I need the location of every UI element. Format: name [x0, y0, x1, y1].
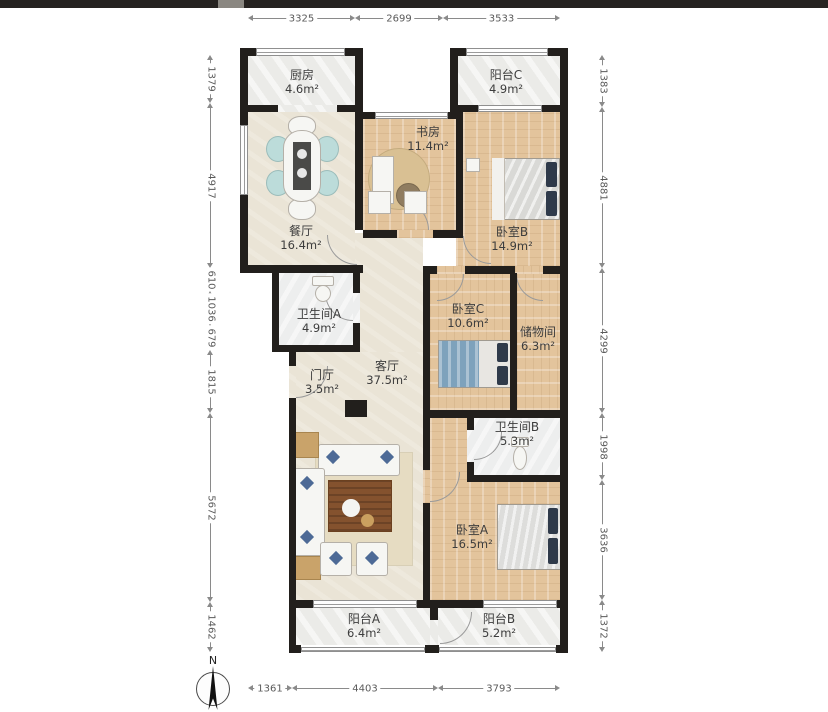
- room-label-storage: 储物间 6.3m²: [520, 326, 556, 353]
- room-name: 卧室B: [491, 226, 532, 239]
- room-name: 储物间: [520, 326, 556, 339]
- dimension-value: 1462: [206, 611, 217, 642]
- wall: [355, 48, 363, 230]
- toilet-bowl: [513, 446, 527, 470]
- dimension-value: 610: [206, 267, 217, 292]
- wall: [353, 323, 360, 345]
- dimension-value: 1383: [598, 65, 609, 96]
- threshold: [467, 430, 474, 462]
- wall: [240, 48, 248, 125]
- dimension-value: 1372: [598, 610, 609, 641]
- wall: [560, 48, 568, 653]
- room-area: 4.6m²: [285, 83, 319, 96]
- dimension-value: 4881: [598, 172, 609, 203]
- wall: [467, 462, 474, 475]
- dimension-right-2: 4881: [596, 107, 608, 268]
- dimension-value: 4917: [206, 170, 217, 201]
- room-area: 6.4m²: [347, 627, 381, 640]
- room-label-balcony-b: 阳台B 5.2m²: [482, 613, 516, 640]
- pillow: [546, 162, 557, 187]
- room-area: 4.9m²: [297, 322, 341, 335]
- wall: [430, 410, 561, 418]
- pillow: [497, 366, 508, 385]
- window: [256, 48, 345, 56]
- dimension-value: 3533: [486, 14, 517, 25]
- pillow: [548, 508, 558, 534]
- dimension-left-1: 1379: [204, 55, 216, 103]
- wall: [289, 600, 313, 608]
- dimension-value: 4299: [598, 325, 609, 356]
- room-area: 10.6m²: [447, 317, 488, 330]
- dimension-top-1: 3325: [248, 12, 355, 24]
- room-label-bedroom-a: 卧室A 16.5m²: [451, 524, 492, 551]
- wall: [289, 645, 301, 653]
- nightstand: [466, 158, 480, 172]
- wall: [240, 105, 278, 112]
- room-area: 5.2m²: [482, 627, 516, 640]
- threshold: [430, 620, 438, 645]
- side-table: [293, 432, 319, 458]
- dimension-value: 3793: [483, 684, 514, 695]
- room-label-bath-b: 卫生间B 5.3m²: [495, 421, 539, 448]
- room-area: 37.5m²: [366, 374, 407, 387]
- wall: [272, 273, 279, 352]
- wall: [337, 105, 363, 112]
- wall: [240, 195, 248, 273]
- wall: [433, 230, 463, 238]
- wall: [423, 503, 430, 600]
- threshold: [515, 266, 543, 274]
- dimension-value: 1379: [206, 63, 217, 94]
- wall: [510, 273, 517, 410]
- room-label-balcony-c: 阳台C 4.9m²: [489, 69, 523, 96]
- window: [466, 48, 548, 56]
- wall: [543, 266, 568, 274]
- room-area: 11.4m²: [407, 140, 448, 153]
- wall: [465, 266, 515, 274]
- dimension-value: 1361: [254, 684, 285, 695]
- dimension-value: 1815: [206, 366, 217, 397]
- room-area: 6.3m²: [520, 340, 556, 353]
- dimension-top-2: 2699: [355, 12, 443, 24]
- threshold: [289, 366, 296, 398]
- dimension-bottom-2: 4403: [292, 682, 438, 694]
- room-name: 客厅: [366, 360, 407, 373]
- wall: [423, 266, 430, 470]
- room-name: 餐厅: [280, 225, 321, 238]
- wall: [430, 608, 438, 620]
- room-name: 门厅: [305, 369, 339, 382]
- room-label-bedroom-b: 卧室B 14.9m²: [491, 226, 532, 253]
- plate: [297, 149, 307, 159]
- bed-sheet: [492, 158, 505, 220]
- wall: [542, 105, 568, 112]
- photo-top-edge-notch: [218, 0, 244, 8]
- wall: [467, 418, 474, 430]
- room-name: 卫生间B: [495, 421, 539, 434]
- room-label-dining: 餐厅 16.4m²: [280, 225, 321, 252]
- threshold: [278, 105, 337, 112]
- room-area: 16.4m²: [280, 239, 321, 252]
- threshold: [353, 293, 360, 323]
- room-area: 14.9m²: [491, 240, 532, 253]
- room-label-study: 书房 11.4m²: [407, 126, 448, 153]
- dimension-bottom-1: 1361: [248, 682, 292, 694]
- room-name: 卧室A: [451, 524, 492, 537]
- dimension-value: 5672: [206, 492, 217, 523]
- dimension-value: 3636: [598, 524, 609, 555]
- wall: [556, 645, 568, 653]
- dimension-left-6: 1815: [204, 350, 216, 413]
- room-label-bath-a: 卫生间A 4.9m²: [297, 308, 341, 335]
- wall: [425, 645, 439, 653]
- study-stool: [404, 191, 427, 214]
- room-area: 3.5m²: [305, 383, 339, 396]
- dimension-right-1: 1383: [596, 55, 608, 107]
- window: [478, 105, 542, 112]
- dimension-value: 1036: [206, 293, 217, 324]
- dimension-left-2: 4917: [204, 103, 216, 268]
- balcony-railing: [439, 647, 556, 652]
- threshold: [423, 470, 430, 503]
- wall: [272, 345, 360, 352]
- dimension-bottom-3: 3793: [438, 682, 560, 694]
- pillow: [548, 538, 558, 564]
- dimension-right-6: 1372: [596, 600, 608, 652]
- room-label-living: 客厅 37.5m²: [366, 360, 407, 387]
- study-stool: [368, 191, 391, 214]
- balcony-railing: [301, 647, 425, 652]
- room-name: 厨房: [285, 69, 319, 82]
- dimension-left-8: 1462: [204, 602, 216, 652]
- room-area: 16.5m²: [451, 538, 492, 551]
- wall: [363, 112, 375, 119]
- room-area: 4.9m²: [489, 83, 523, 96]
- dimension-value: 679: [206, 325, 217, 350]
- side-table: [295, 556, 321, 580]
- dimension-left-4: 1036: [204, 291, 216, 326]
- room-name: 书房: [407, 126, 448, 139]
- window: [483, 600, 557, 608]
- threshold: [456, 235, 463, 266]
- dimension-value: 3325: [286, 14, 317, 25]
- room-name: 阳台A: [347, 613, 381, 626]
- room-name: 阳台B: [482, 613, 516, 626]
- room-area: 5.3m²: [495, 435, 539, 448]
- wall: [557, 600, 568, 608]
- threshold: [397, 230, 433, 238]
- dimension-value: 2699: [383, 14, 414, 25]
- threshold: [437, 266, 465, 274]
- wall: [363, 230, 397, 238]
- dimension-right-5: 3636: [596, 480, 608, 600]
- wall: [289, 352, 296, 366]
- room-label-balcony-a: 阳台A 6.4m²: [347, 613, 381, 640]
- bed-blanket: [439, 341, 479, 387]
- wall: [240, 265, 363, 273]
- window: [240, 125, 248, 195]
- coffee-table: [328, 480, 392, 532]
- photo-top-edge: [0, 0, 828, 8]
- room-label-bedroom-c: 卧室C 10.6m²: [447, 303, 488, 330]
- coffee-table-bowl: [361, 514, 374, 527]
- wall: [345, 400, 367, 417]
- toilet-bowl: [315, 285, 331, 302]
- dimension-value: 4403: [349, 684, 380, 695]
- dimension-left-7: 5672: [204, 413, 216, 602]
- window: [375, 112, 448, 119]
- wall: [467, 475, 560, 482]
- wall: [423, 600, 483, 608]
- wall: [289, 398, 296, 648]
- room-name: 卧室C: [447, 303, 488, 316]
- floor-plan: 厨房 4.6m² 阳台C 4.9m² 书房 11.4m² 卧室B 14.9m² …: [0, 0, 828, 712]
- room-label-kitchen: 厨房 4.6m²: [285, 69, 319, 96]
- north-label: N: [203, 654, 223, 666]
- wall: [456, 105, 463, 235]
- plate: [297, 168, 307, 178]
- dimension-left-3: 610: [204, 268, 216, 291]
- coffee-table-bowl: [342, 499, 360, 517]
- dimension-top-3: 3533: [443, 12, 560, 24]
- dimension-right-3: 4299: [596, 268, 608, 413]
- dimension-value: 1998: [598, 431, 609, 462]
- room-name: 卫生间A: [297, 308, 341, 321]
- sliding-door-window: [313, 600, 417, 608]
- pillow: [546, 191, 557, 216]
- room-name: 阳台C: [489, 69, 523, 82]
- wall: [353, 273, 360, 293]
- pillow: [497, 343, 508, 362]
- dimension-right-4: 1998: [596, 413, 608, 480]
- dimension-left-5: 679: [204, 326, 216, 350]
- wall: [450, 48, 458, 112]
- room-label-foyer: 门厅 3.5m²: [305, 369, 339, 396]
- wall: [450, 105, 478, 112]
